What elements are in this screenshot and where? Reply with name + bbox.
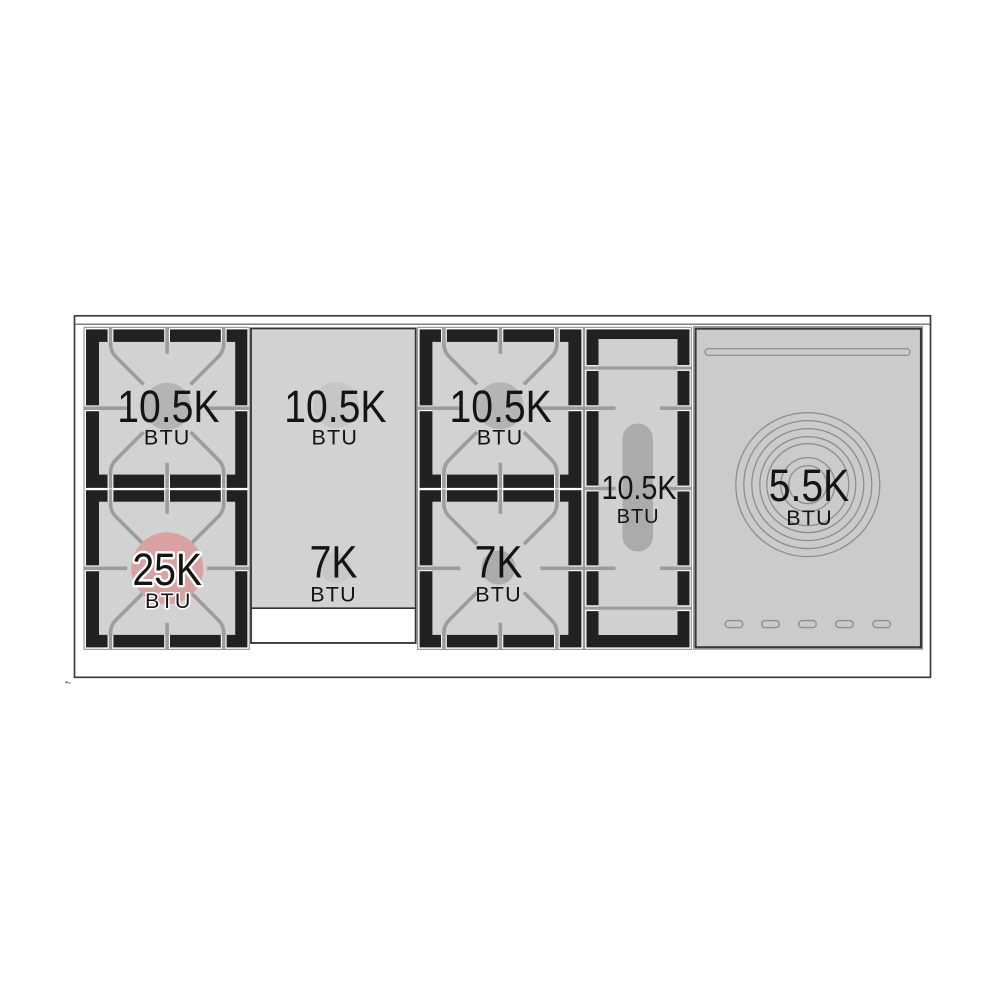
svg-text:10.5K: 10.5K [117,382,219,432]
svg-text:5.5K: 5.5K [769,460,850,510]
svg-text:10.5K: 10.5K [449,382,551,432]
svg-text:7K: 7K [475,537,523,587]
svg-text:BTU: BTU [144,425,191,449]
svg-text:BTU: BTU [617,506,660,528]
svg-text:BTU: BTU [145,589,192,613]
svg-text:BTU: BTU [310,583,357,607]
svg-text:10.5K: 10.5K [602,469,677,506]
svg-text:25K: 25K [132,544,202,594]
svg-text:BTU: BTU [311,425,358,449]
svg-text:BTU: BTU [477,425,524,449]
svg-text:7K: 7K [310,537,358,587]
svg-text:BTU: BTU [786,506,833,530]
svg-text:10.5K: 10.5K [284,382,386,432]
svg-text:BTU: BTU [475,583,522,607]
